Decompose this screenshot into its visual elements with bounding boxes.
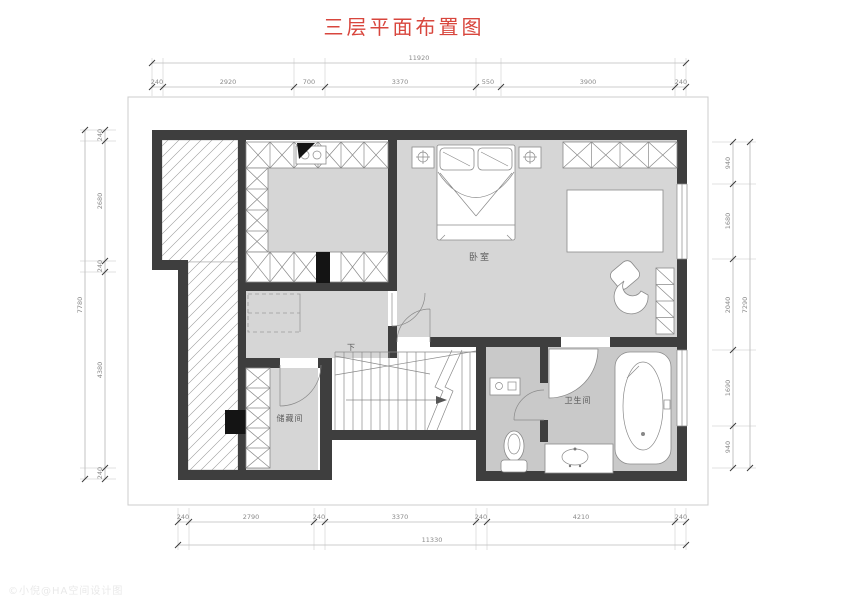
- wall-left-lower: [178, 260, 188, 480]
- wall-study-bottom-a: [238, 358, 280, 368]
- cloakroom-floor: [268, 168, 388, 252]
- wall-study-bottom-b: [318, 358, 332, 368]
- dim-label: 240: [96, 467, 104, 479]
- dim-label: 2680: [96, 193, 104, 210]
- wall-bottom-left: [178, 470, 330, 480]
- dim-label: 2040: [724, 297, 732, 314]
- watermark: ©小倪@HA空间设计图: [8, 584, 123, 597]
- dim-label: 940: [724, 157, 732, 169]
- dim-label: 240: [475, 513, 487, 521]
- wall-storage-right: [320, 358, 332, 480]
- dim-label: 240: [313, 513, 325, 521]
- dim-label: 3370: [392, 513, 409, 521]
- washer: [490, 378, 520, 395]
- dim-label: 2790: [243, 513, 260, 521]
- storage-cabinet-column: [246, 368, 270, 468]
- column-black: [225, 410, 246, 434]
- bed: [437, 145, 515, 240]
- wall-bath-left-upper: [476, 347, 486, 440]
- top-extension-lines: [149, 58, 689, 96]
- dim-label: 240: [675, 78, 687, 86]
- wall-bath-partition-b: [540, 420, 548, 442]
- wall-top: [152, 130, 687, 140]
- dim-label: 11330: [422, 536, 443, 544]
- dim-label: 240: [96, 129, 104, 141]
- closet-left-strip: [246, 168, 268, 252]
- dim-label: 3900: [580, 78, 597, 86]
- wall-bath-top: [610, 337, 677, 347]
- dim-label: 940: [724, 441, 732, 453]
- storage-label: 储藏间: [277, 413, 304, 423]
- study-floor: [246, 291, 388, 358]
- dim-label: 2920: [220, 78, 237, 86]
- wall-right: [677, 130, 687, 481]
- left-extension-lines: [80, 127, 116, 482]
- dim-label: 700: [303, 78, 315, 86]
- nightstand-left: [412, 147, 434, 168]
- sink-vanity: [545, 444, 613, 473]
- dim-label: 7290: [741, 297, 749, 314]
- wall-left-upper: [152, 130, 162, 270]
- nightstand-right: [519, 147, 541, 168]
- wardrobe-top-right: [563, 142, 677, 168]
- dim-label: 550: [482, 78, 494, 86]
- break-line: [427, 350, 462, 430]
- page-title: 三层平面布置图: [324, 15, 485, 39]
- wall-cloak-bottom: [246, 282, 396, 291]
- floor-plan-canvas: 三层平面布置图: [0, 0, 858, 607]
- dim-label: 7780: [76, 297, 84, 314]
- dim-label: 240: [96, 260, 104, 272]
- right-extension-lines: [712, 139, 756, 471]
- bathtub: [615, 352, 671, 464]
- dim-label: 4380: [96, 362, 104, 379]
- closet-bottom-strip: [246, 252, 388, 283]
- dim-label: 11920: [409, 54, 430, 62]
- shelf-right-wall: [656, 268, 674, 334]
- bedroom-label: 卧室: [469, 251, 491, 263]
- stair-direction-label: 下: [347, 343, 356, 352]
- dim-label: 240: [177, 513, 189, 521]
- dim-label: 240: [675, 513, 687, 521]
- closet-top-strip: [246, 142, 388, 168]
- bathroom-label: 卫生间: [565, 395, 592, 405]
- dim-label: 4210: [573, 513, 590, 521]
- wall-cloak-bedroom: [388, 140, 397, 291]
- floor-plan-page: 三层平面布置图: [0, 0, 858, 607]
- rug: [567, 190, 663, 252]
- dim-label: 3370: [392, 78, 409, 86]
- wall-stairs-bottom: [330, 430, 486, 440]
- dim-label: 1680: [724, 213, 732, 230]
- dim-label: 1690: [724, 380, 732, 397]
- stair-arrow: [436, 396, 447, 404]
- wall-bath-partition-a: [540, 347, 548, 383]
- dim-label: 240: [151, 78, 163, 86]
- wall-bedroom-bottom: [430, 337, 561, 347]
